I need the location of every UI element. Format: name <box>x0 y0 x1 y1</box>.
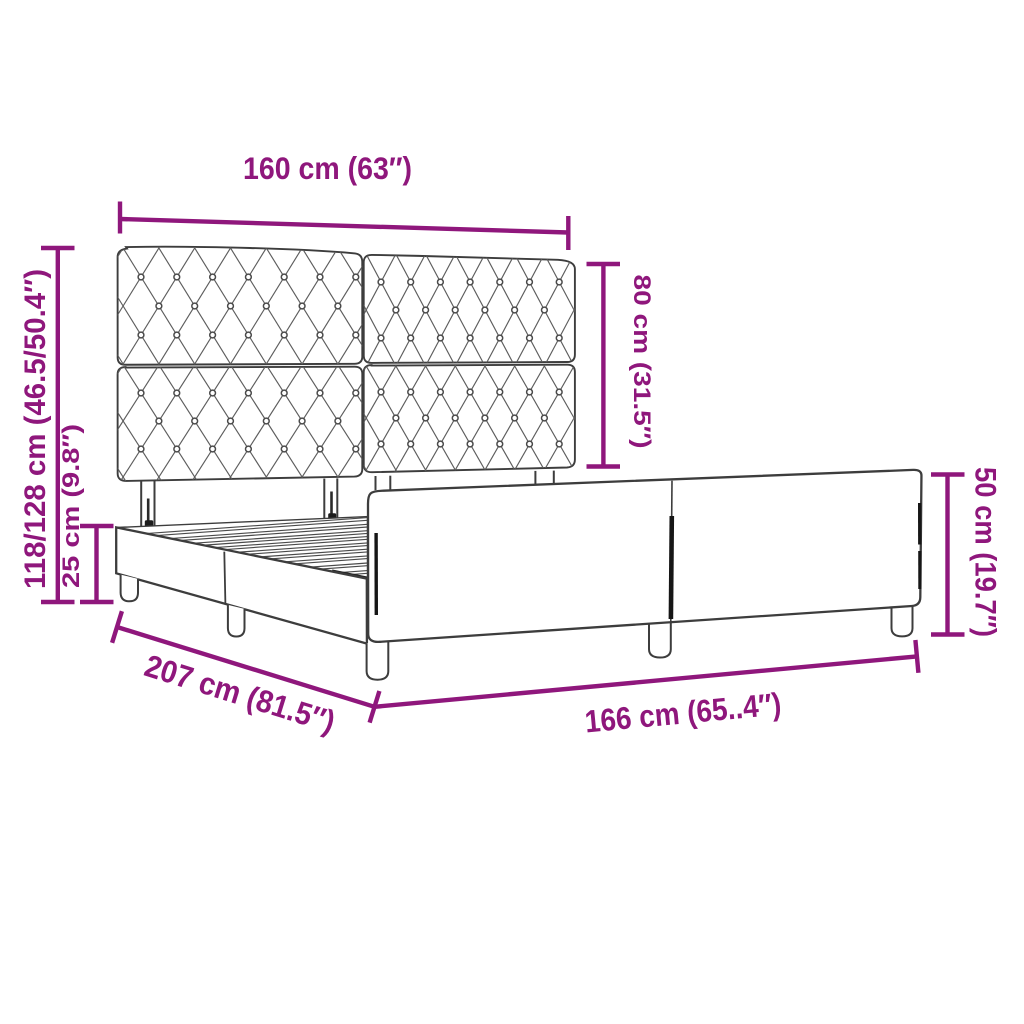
svg-text:25 cm (9.8″): 25 cm (9.8″) <box>58 424 85 588</box>
svg-text:80 cm (31.5″): 80 cm (31.5″) <box>628 275 655 449</box>
svg-text:50 cm (19.7″): 50 cm (19.7″) <box>969 467 1002 637</box>
svg-text:160 cm (63″): 160 cm (63″) <box>243 150 412 186</box>
svg-text:118/128 cm (46.5/50.4″): 118/128 cm (46.5/50.4″) <box>20 269 52 589</box>
